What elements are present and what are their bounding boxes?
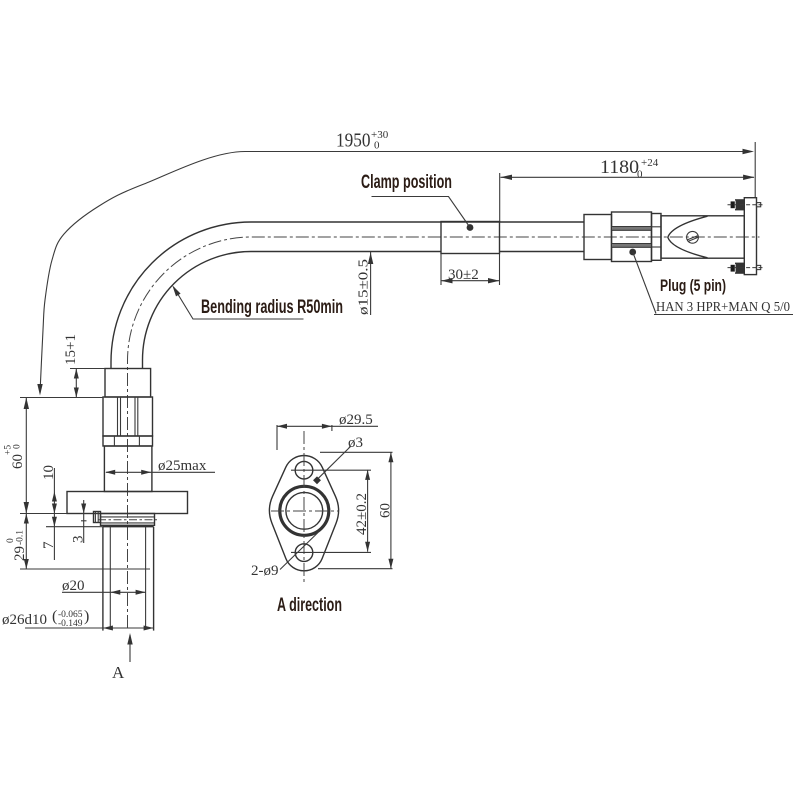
svg-text:60: 60: [10, 454, 26, 469]
svg-text:0: 0: [6, 538, 16, 543]
svg-text:Plug (5 pin): Plug (5 pin): [660, 276, 726, 295]
svg-text:-0.149: -0.149: [58, 619, 83, 629]
svg-text:-0.1: -0.1: [16, 530, 26, 545]
svg-text:2-ø9: 2-ø9: [251, 563, 279, 579]
svg-text:ø29.5: ø29.5: [339, 412, 373, 428]
svg-text:0: 0: [374, 140, 380, 152]
svg-text:+24: +24: [641, 157, 659, 169]
svg-text:30±2: 30±2: [448, 267, 479, 283]
svg-text:7: 7: [41, 541, 57, 549]
svg-text:ø26d10: ø26d10: [2, 612, 47, 628]
svg-text:A direction: A direction: [277, 595, 342, 616]
svg-text:42±0.2: 42±0.2: [354, 493, 370, 535]
svg-text:(: (: [52, 608, 57, 625]
svg-text:Bending radius R50min: Bending radius R50min: [201, 297, 343, 318]
svg-text:0: 0: [13, 444, 23, 449]
svg-text:HAN 3 HPR+MAN Q 5/0: HAN 3 HPR+MAN Q 5/0: [656, 299, 790, 314]
svg-text:1950: 1950: [336, 130, 371, 152]
svg-text:3: 3: [71, 536, 87, 544]
svg-text:ø3: ø3: [348, 435, 363, 451]
svg-text:): ): [84, 608, 89, 625]
svg-text:60: 60: [378, 503, 394, 518]
svg-text:0: 0: [637, 169, 643, 181]
svg-text:1180: 1180: [600, 157, 639, 178]
svg-text:10: 10: [41, 465, 57, 480]
svg-text:ø15±0.5: ø15±0.5: [356, 259, 371, 315]
svg-text:Clamp position: Clamp position: [361, 172, 452, 193]
svg-text:ø20: ø20: [62, 578, 85, 594]
svg-text:15+1: 15+1: [63, 334, 79, 365]
svg-text:ø25max: ø25max: [158, 458, 207, 474]
svg-text:29: 29: [12, 546, 28, 561]
svg-text:A: A: [112, 663, 125, 682]
